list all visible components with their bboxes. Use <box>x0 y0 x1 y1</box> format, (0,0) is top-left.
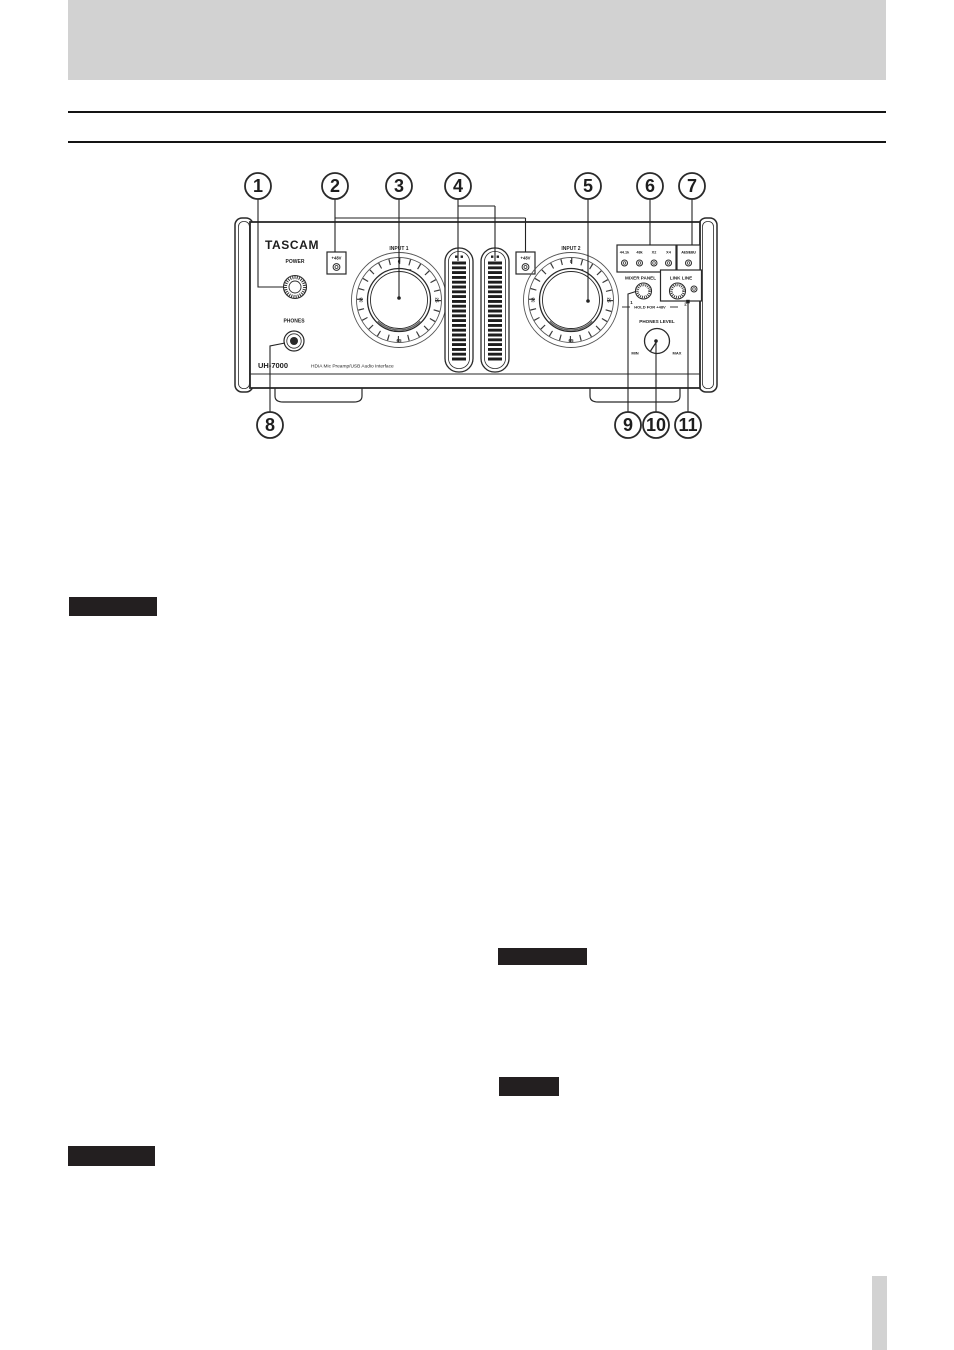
callout-10-number: 10 <box>646 415 666 435</box>
right-rack-ear <box>699 218 717 392</box>
rate-44k-label: 44.1k <box>620 251 630 255</box>
level-meter-1 <box>445 248 473 372</box>
aes-ebu-label: AES/EBU <box>681 251 696 255</box>
device-feet <box>275 388 680 402</box>
power-switch: POWER <box>284 259 307 299</box>
phantom-48v-indicator-2: +48V <box>516 252 535 274</box>
hold-for-48v-text: HOLD FOR +48V <box>634 305 666 310</box>
filled-heading-badge-4 <box>68 1146 155 1166</box>
phones-level-label: PHONES LEVEL <box>639 319 675 324</box>
phantom-48v-label-1: +48V <box>332 256 342 261</box>
input2-label: INPUT 2 <box>561 246 580 252</box>
phantom-48v-indicator-1: +48V <box>327 252 346 274</box>
brand-logo: TASCAM <box>265 238 319 252</box>
filled-heading-badge-2 <box>498 948 587 965</box>
callout-2-number: 2 <box>330 176 340 196</box>
meter-2-segments <box>488 263 502 359</box>
meter-1-segments <box>452 263 466 359</box>
model-label: UH-7000 <box>258 361 288 370</box>
input1-scale-65: 65 <box>396 338 402 343</box>
level-meter-2 <box>481 248 509 372</box>
input1-scale-left: 38 <box>359 297 364 303</box>
max-label: MAX <box>673 351 682 356</box>
phones-jack: PHONES <box>283 319 305 352</box>
section-rule-bottom <box>68 141 886 143</box>
callout-1-number: 1 <box>253 176 263 196</box>
mixer-panel-label: MIXER PANEL <box>625 276 656 281</box>
aes-ebu-indicator: AES/EBU <box>677 245 700 272</box>
callout-6-number: 6 <box>645 176 655 196</box>
input1-scale-right: 25 <box>435 297 440 303</box>
callout-5-number: 5 <box>583 176 593 196</box>
callout-11-number: 11 <box>678 415 697 435</box>
callout-9-number: 9 <box>623 415 633 435</box>
front-panel-figure: TASCAM UH-7000 HDIA Mic Preamp/USB Audio… <box>225 160 725 450</box>
min-label: MIN <box>631 351 638 356</box>
page-edge-tab <box>872 1276 887 1350</box>
phones-label: PHONES <box>283 319 305 325</box>
section-rule-top <box>68 111 886 113</box>
page-header-bar <box>68 0 886 80</box>
callout-8-number: 8 <box>265 415 275 435</box>
callout-4-number: 4 <box>453 176 463 196</box>
link-line-button: LINK LINE 2 <box>661 270 702 307</box>
sample-rate-indicator-box: 44.1k 48k X2 X4 <box>617 245 676 272</box>
input2-scale-right: 25 <box>607 297 612 303</box>
link-line-label: LINK LINE <box>670 276 692 281</box>
callout-3-number: 3 <box>394 176 404 196</box>
input2-scale-left: 38 <box>531 297 536 303</box>
tagline-label: HDIA Mic Preamp/USB Audio Interface <box>311 364 394 370</box>
input2-scale-65: 65 <box>568 338 574 343</box>
filled-heading-badge-3 <box>499 1077 559 1096</box>
power-label: POWER <box>286 259 305 265</box>
phantom-48v-label-2: +48V <box>521 256 531 261</box>
callout-7-number: 7 <box>687 176 697 196</box>
rate-48k-label: 48k <box>636 251 643 255</box>
rate-x2-label: X2 <box>652 251 657 255</box>
filled-heading-badge-1 <box>69 597 157 616</box>
